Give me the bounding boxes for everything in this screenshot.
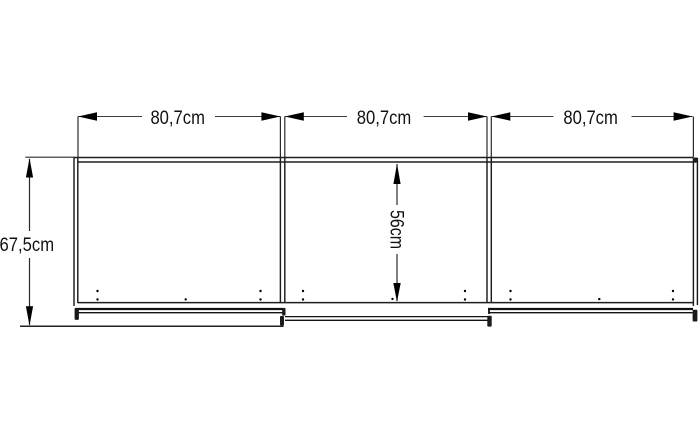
svg-text:80,7cm: 80,7cm	[357, 107, 412, 129]
svg-text:67,5cm: 67,5cm	[0, 234, 54, 256]
svg-text:80,7cm: 80,7cm	[563, 107, 618, 129]
svg-text:56cm: 56cm	[386, 210, 408, 249]
svg-text:80,7cm: 80,7cm	[150, 107, 205, 129]
